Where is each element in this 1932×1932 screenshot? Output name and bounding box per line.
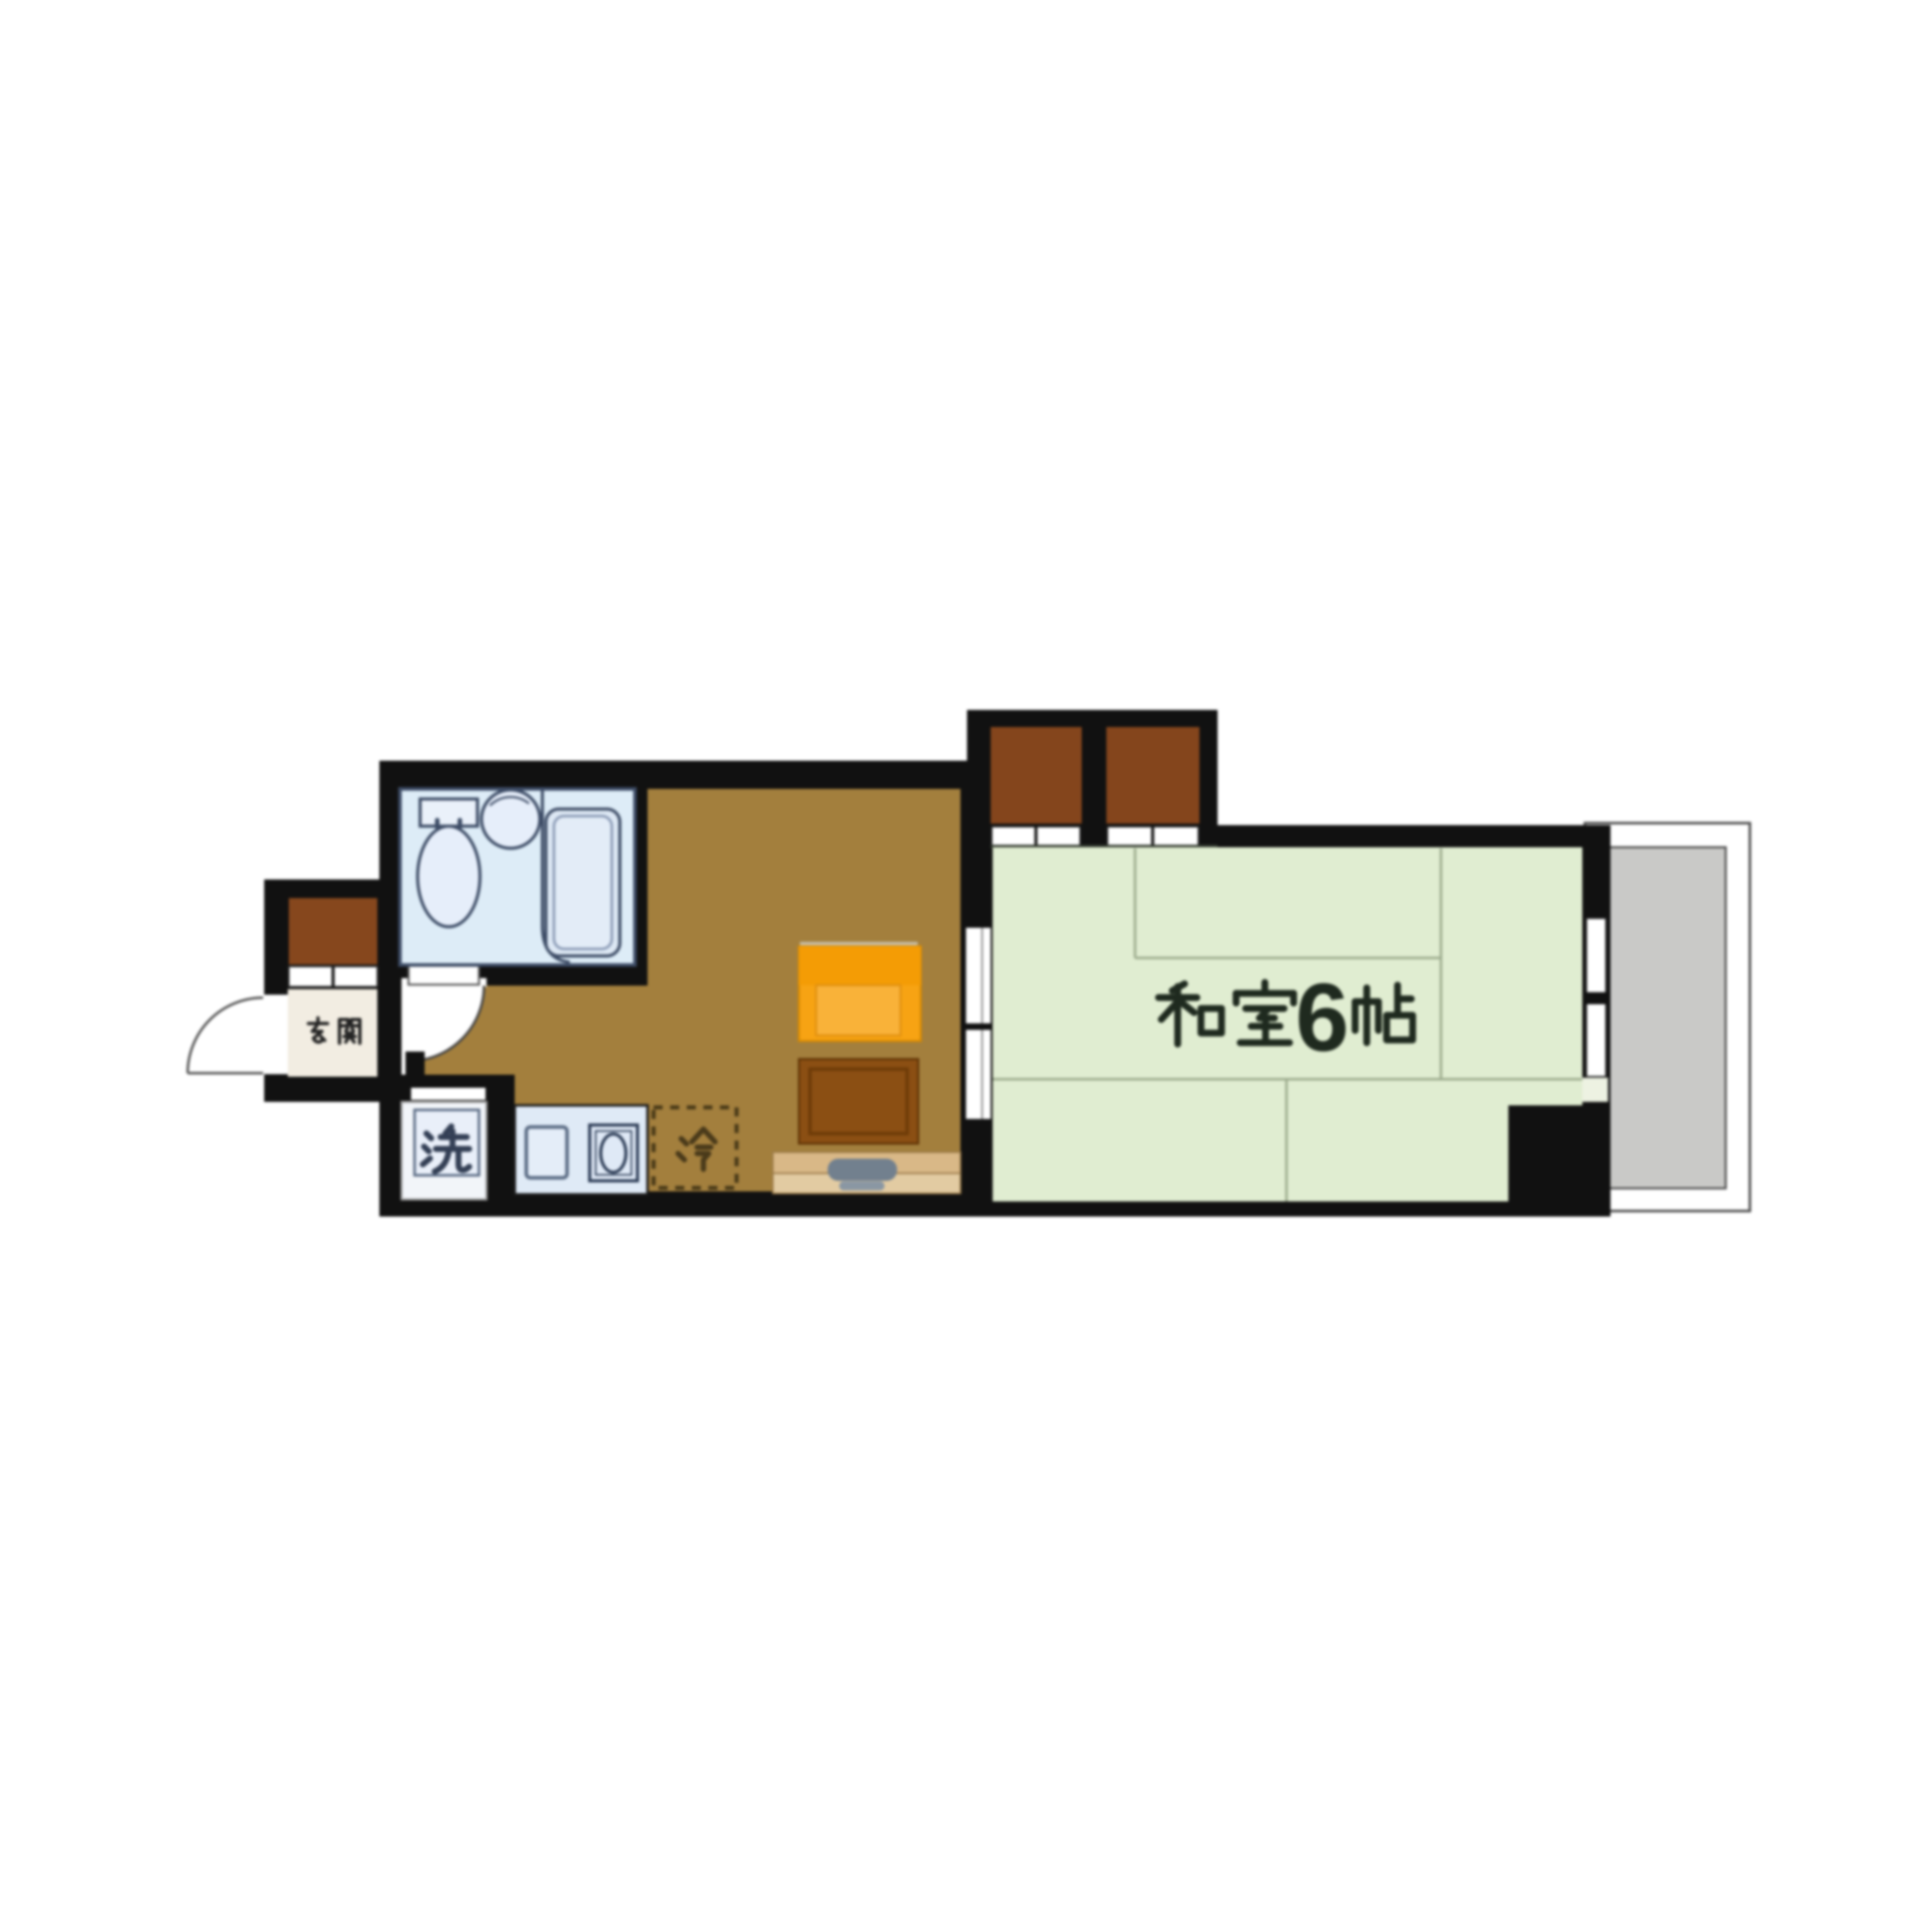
svg-text:6: 6 <box>1296 963 1349 1071</box>
